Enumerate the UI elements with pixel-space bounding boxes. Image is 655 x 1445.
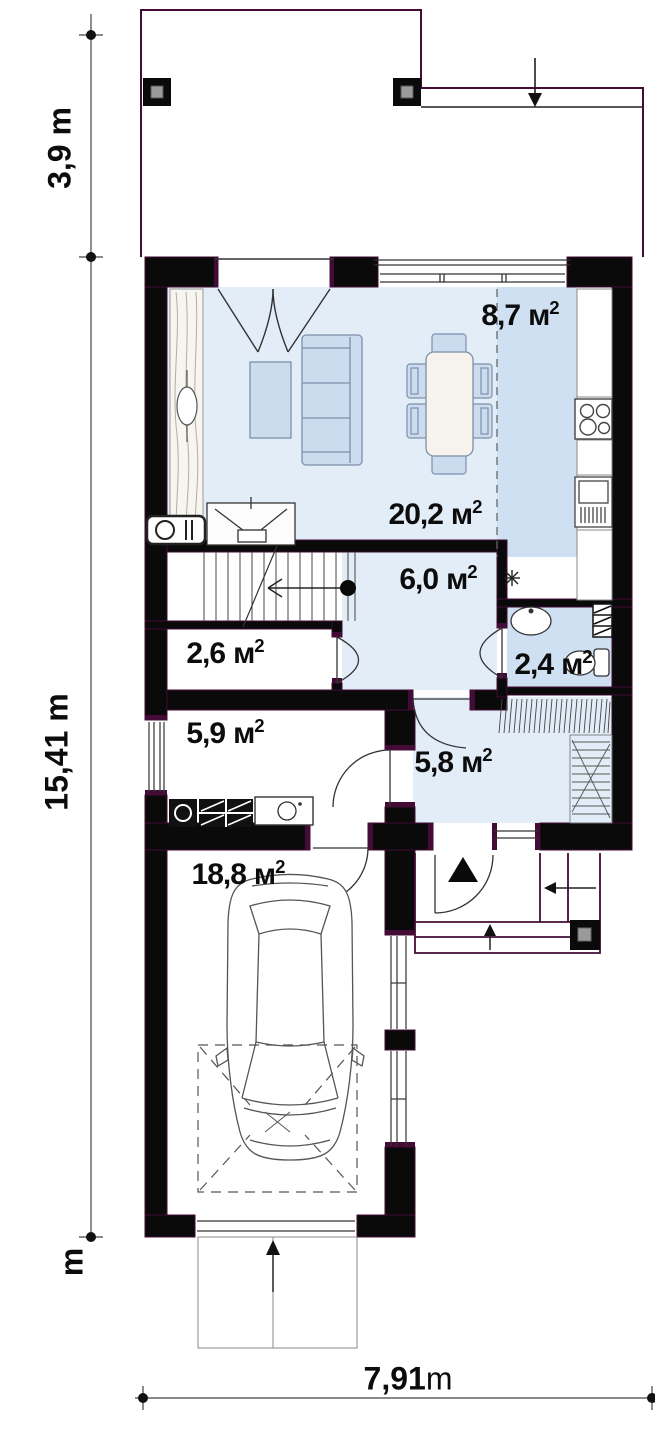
car-mirror <box>216 1048 228 1066</box>
stairs-break-line <box>243 546 277 627</box>
entry-arrow <box>448 857 478 882</box>
stairs <box>204 552 355 621</box>
dimension-label-top-height: 3,9 m <box>42 107 79 189</box>
radiator <box>593 604 612 637</box>
dining-chair-back <box>411 368 418 394</box>
room-area-label-utility: 5,9м2 <box>186 715 263 751</box>
kitchen-appliance <box>575 477 612 527</box>
wood-deck-strip <box>170 289 203 540</box>
room-area-label-vestibule: 5,8м2 <box>414 744 491 780</box>
window-garage-1 <box>391 936 406 1029</box>
room-area-label-garage: 18,8м2 <box>192 856 285 892</box>
deck-handle <box>177 387 197 425</box>
fireplace <box>207 497 295 545</box>
stairs-newel-dot <box>340 580 356 596</box>
kitchen-counter <box>577 289 612 600</box>
dimension-label-main-height: 15,41 m <box>39 693 76 810</box>
drain-symbol <box>504 570 520 586</box>
cooktop <box>575 399 612 439</box>
car <box>216 875 364 1161</box>
floor-plan-drawing <box>0 0 655 1445</box>
floor-plan-page: 3,9 m 15,41 m m 7,91m 8,7м2 20,2м2 6,0м2… <box>0 0 655 1445</box>
terrace-column <box>143 78 171 106</box>
dimension-label-bottom-unit: m <box>54 1248 91 1276</box>
dining-table <box>426 352 473 456</box>
washbasin <box>511 607 551 635</box>
dimension-line-left <box>79 14 103 1242</box>
room-area-label-bathroom: 2,4м2 <box>514 646 591 682</box>
room-area-label-living-dining: 20,2м2 <box>389 496 482 532</box>
porch-column <box>570 920 600 950</box>
window-top <box>374 260 570 282</box>
sofa <box>302 335 362 465</box>
dimension-label-width: 7,91m <box>364 1361 453 1398</box>
appliance-vent <box>581 507 605 523</box>
dining-chair-back <box>481 368 488 394</box>
dimension-width-value: 7,91 <box>364 1361 426 1397</box>
room-area-label-storage: 2,6м2 <box>186 635 263 671</box>
room-area-label-hall: 6,0м2 <box>399 561 476 597</box>
dining-chair-back <box>481 408 488 434</box>
coffee-table <box>250 362 291 438</box>
door-utility <box>333 750 390 807</box>
window-left-utility <box>149 722 164 792</box>
car-mirror <box>352 1048 364 1066</box>
stove-unit <box>147 516 205 544</box>
driveway-arrow <box>266 1240 280 1292</box>
porch-step-arrow <box>544 882 596 894</box>
washing-machine <box>169 799 197 827</box>
terrace-column <box>393 78 421 106</box>
terrace <box>141 10 643 257</box>
utility-sink <box>255 797 313 825</box>
utility-hatch-unit <box>199 799 253 827</box>
dining-chair-back <box>411 408 418 434</box>
window-vestibule-front <box>494 831 538 838</box>
room-area-label-kitchen: 8,7м2 <box>481 297 558 333</box>
dimension-width-unit: m <box>426 1361 453 1397</box>
garage-door <box>197 1221 355 1231</box>
window-garage-2 <box>391 1051 406 1146</box>
